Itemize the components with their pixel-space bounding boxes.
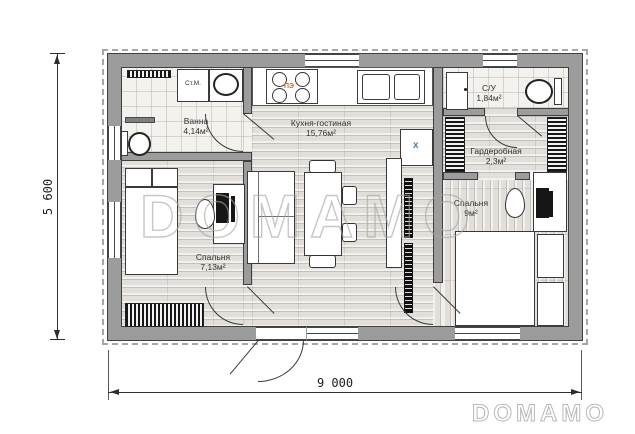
toilet1-tank bbox=[121, 131, 128, 156]
stove-burner bbox=[295, 88, 310, 103]
wall-wardrobe-south-right bbox=[515, 172, 530, 180]
stove-label: ПЭ bbox=[284, 83, 294, 90]
wardrobe-area: 2,3м² bbox=[446, 156, 546, 166]
desk2-computer bbox=[536, 188, 549, 218]
washing-machine-label: Ст.М. bbox=[177, 80, 209, 87]
dim-arrow-left bbox=[110, 389, 119, 395]
dim-arrow-up bbox=[54, 55, 60, 64]
dim-height-label: 5 600 bbox=[41, 157, 55, 237]
watermark-corner: DOMAMO bbox=[472, 400, 632, 428]
bedroom1-name: Спальня bbox=[163, 252, 263, 262]
wall-wc-south-right bbox=[517, 108, 569, 116]
toilet2-tank bbox=[554, 78, 562, 105]
dining-chair-top bbox=[309, 160, 336, 173]
dim-tick-top bbox=[50, 53, 65, 54]
window-kitchen-north bbox=[305, 54, 359, 67]
window-living-south bbox=[307, 327, 358, 340]
wall-wardrobe-south-left bbox=[443, 172, 478, 180]
floor-plan: Ст.М. ПЭ x Ванна bbox=[0, 0, 635, 434]
wardrobe-cabinet-right bbox=[547, 117, 567, 172]
wall-bathroom-east bbox=[243, 67, 252, 114]
bathroom-label: Ванна 4,14м² bbox=[146, 116, 246, 136]
wc-label: С/У 1,84м² bbox=[439, 83, 539, 103]
bathroom-name: Ванна bbox=[146, 116, 246, 126]
window-bedroom2-south bbox=[455, 327, 520, 340]
kitchen-sink-bowl-left bbox=[362, 74, 390, 100]
kitchen-label: Кухня-гостиная 15,76м² bbox=[261, 118, 381, 138]
dim-line-horizontal bbox=[108, 392, 582, 393]
desk2-monitor bbox=[549, 191, 553, 217]
entrance-opening bbox=[256, 327, 306, 340]
bathroom-area: 4,14м² bbox=[146, 126, 246, 136]
dim-arrow-down bbox=[54, 330, 60, 339]
bed2-pillow-bottom bbox=[537, 282, 564, 326]
wc-area: 1,84м² bbox=[439, 93, 539, 103]
wardrobe-name: Гардеробная bbox=[446, 146, 546, 156]
water-heater-label: x bbox=[413, 140, 419, 151]
dim-arrow-right bbox=[571, 389, 580, 395]
dim-tick-bottom bbox=[50, 339, 65, 340]
wardrobe-label: Гардеробная 2,3м² bbox=[446, 146, 546, 166]
dim-width-label: 9 000 bbox=[260, 376, 410, 390]
kitchen-sink-bowl-right bbox=[394, 74, 420, 100]
bedroom1-label: Спальня 7,13м² bbox=[163, 252, 263, 272]
wc-name: С/У bbox=[439, 83, 539, 93]
kitchen-name: Кухня-гостиная bbox=[261, 118, 381, 128]
towel-radiator bbox=[127, 70, 171, 78]
entrance-door-leaf bbox=[230, 340, 259, 374]
dining-chair-bottom bbox=[309, 255, 336, 268]
window-wc-north bbox=[483, 54, 517, 67]
watermark-center: DOMAMO bbox=[118, 182, 502, 251]
bed2-pillow-top bbox=[537, 234, 564, 278]
bathroom-sink bbox=[213, 73, 239, 96]
stove-burner bbox=[272, 88, 287, 103]
window-bathroom-west bbox=[108, 126, 121, 160]
bedroom1-area: 7,13м² bbox=[163, 262, 263, 272]
stove-burner bbox=[295, 72, 310, 87]
bedroom1-wardrobe bbox=[125, 303, 204, 327]
kitchen-area: 15,76м² bbox=[261, 128, 381, 138]
dim-line-vertical bbox=[57, 54, 58, 340]
